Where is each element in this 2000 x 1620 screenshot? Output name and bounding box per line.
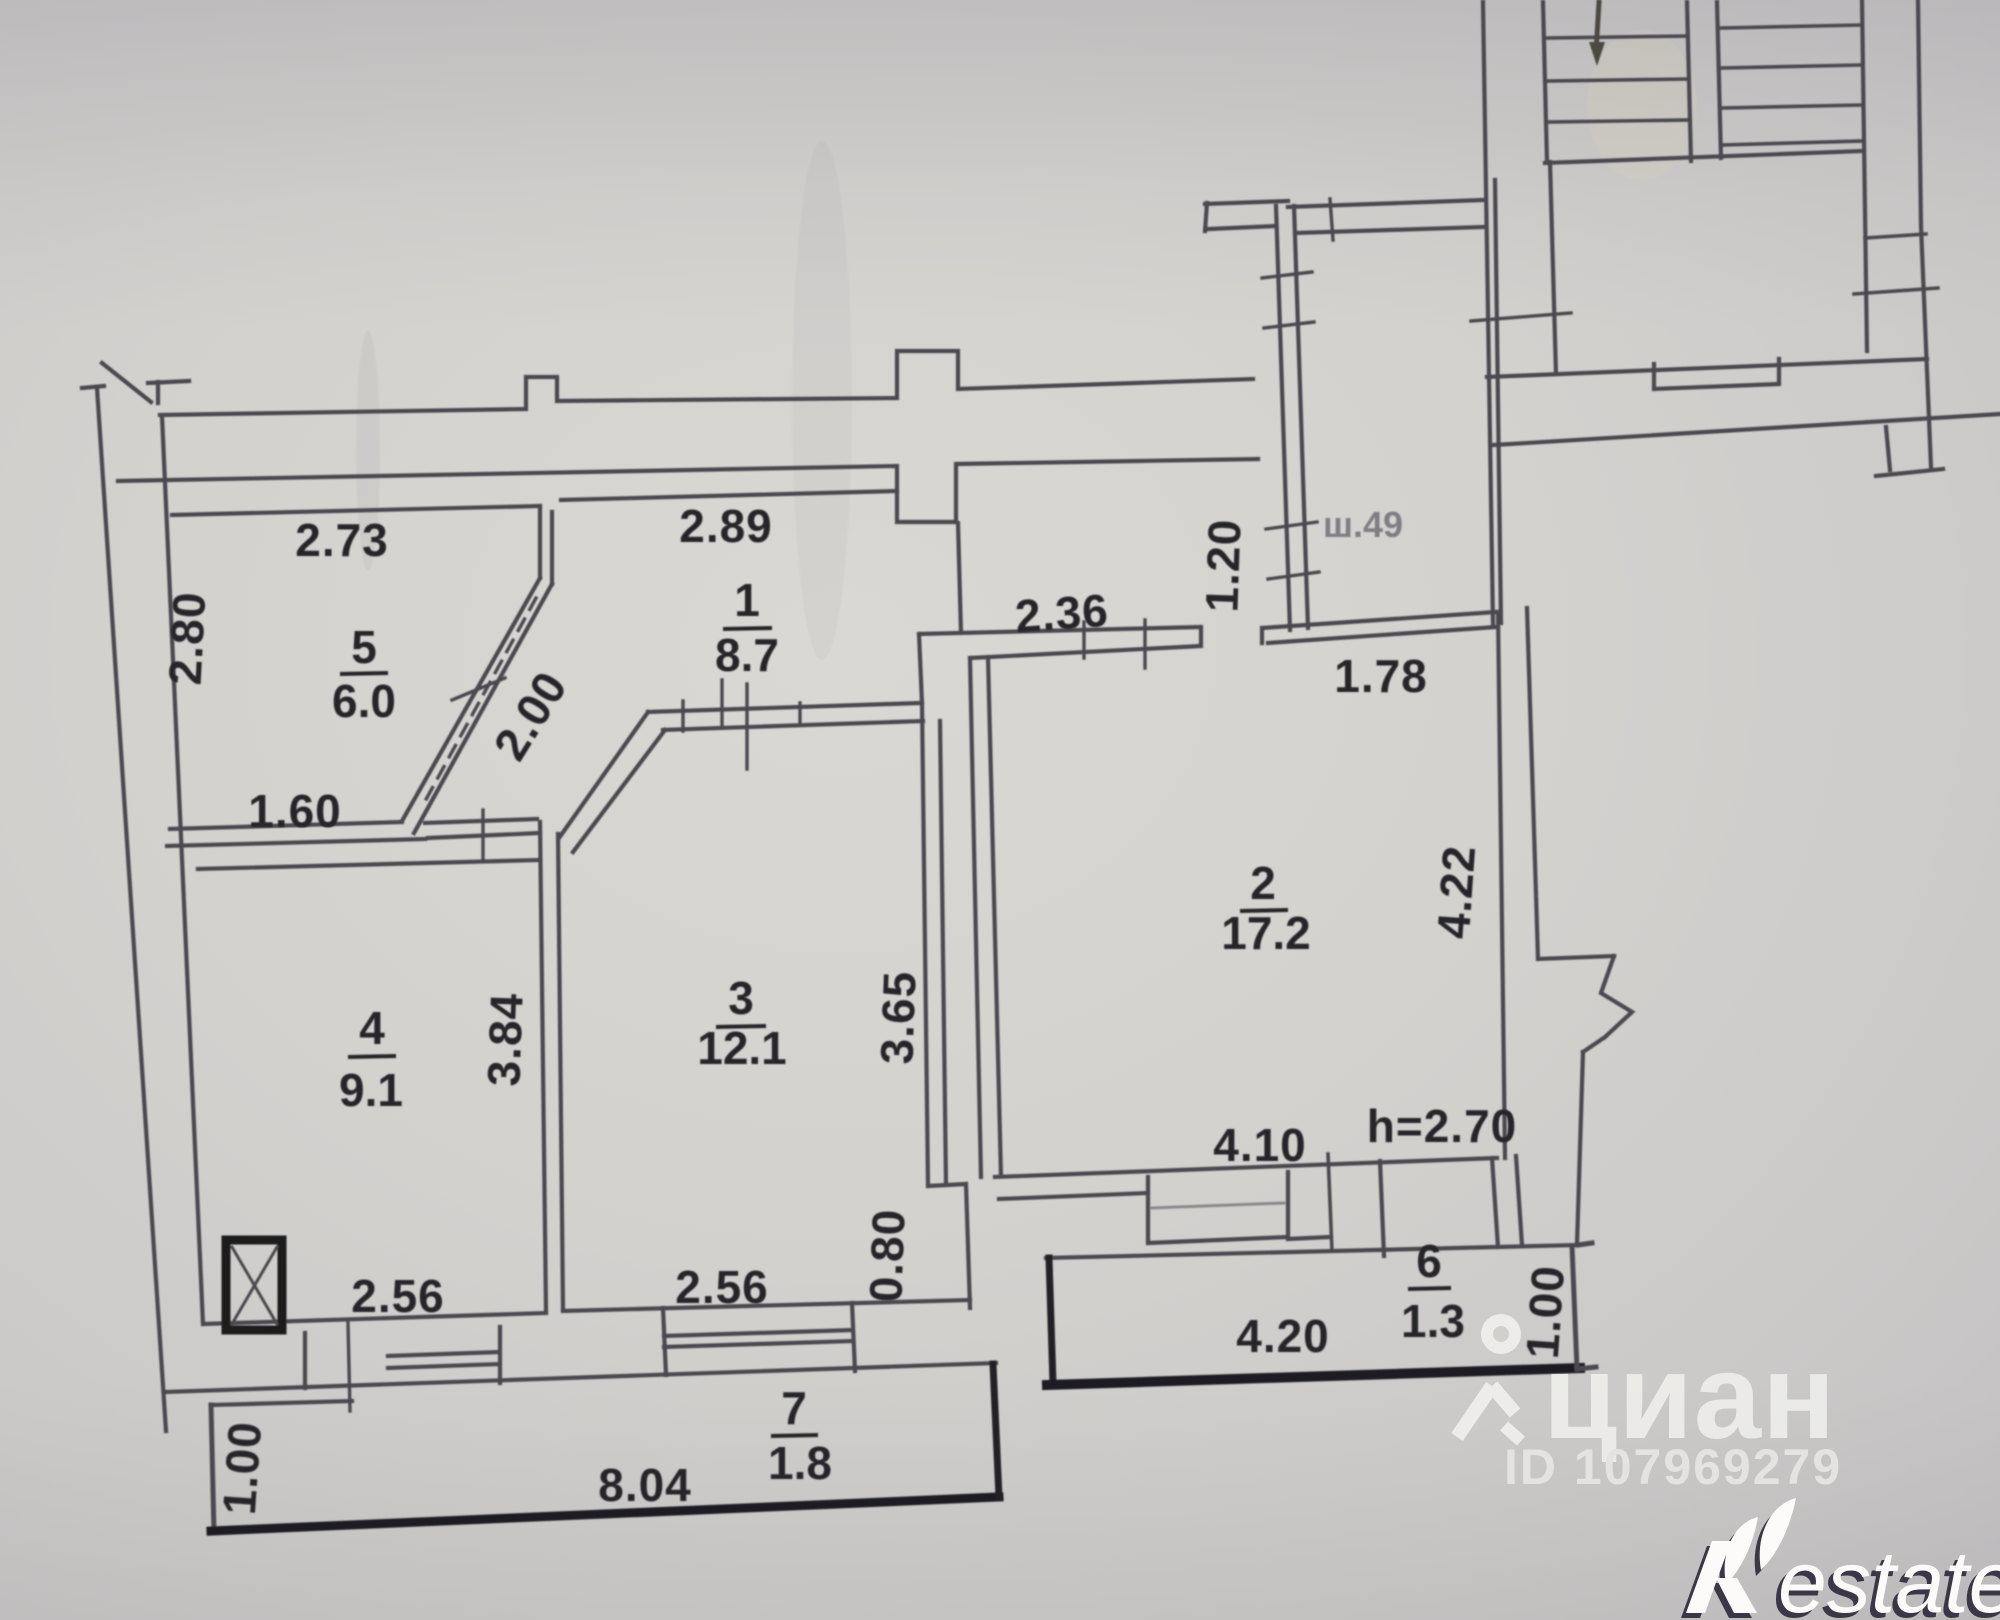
svg-text:8.04: 8.04 bbox=[598, 1459, 692, 1511]
svg-text:1.20: 1.20 bbox=[1195, 518, 1250, 613]
svg-text:3.84: 3.84 bbox=[477, 992, 532, 1087]
svg-text:4.22: 4.22 bbox=[1427, 843, 1485, 940]
svg-text:1.60: 1.60 bbox=[248, 785, 342, 837]
svg-text:2.36: 2.36 bbox=[1013, 584, 1110, 642]
svg-text:3: 3 bbox=[728, 972, 754, 1024]
svg-text:2.73: 2.73 bbox=[295, 514, 389, 566]
svg-text:4.10: 4.10 bbox=[1213, 1119, 1307, 1171]
svg-text:9.1: 9.1 bbox=[339, 1064, 403, 1116]
svg-text:2.80: 2.80 bbox=[159, 590, 216, 686]
svg-text:1.00: 1.00 bbox=[213, 1419, 271, 1516]
svg-text:1.78: 1.78 bbox=[1334, 650, 1428, 702]
svg-text:6: 6 bbox=[1416, 1235, 1442, 1287]
svg-text:h=2.70: h=2.70 bbox=[1367, 1100, 1518, 1152]
svg-text:6.0: 6.0 bbox=[332, 675, 396, 727]
svg-text:7: 7 bbox=[781, 1382, 807, 1434]
svg-text:8.7: 8.7 bbox=[715, 629, 779, 681]
svg-text:17.2: 17.2 bbox=[1221, 907, 1311, 959]
svg-text:5: 5 bbox=[351, 621, 377, 673]
svg-text:1: 1 bbox=[734, 574, 760, 626]
svg-text:ID 107969279: ID 107969279 bbox=[1504, 1439, 1842, 1495]
svg-text:0.80: 0.80 bbox=[859, 1208, 914, 1303]
svg-text:2.56: 2.56 bbox=[351, 1270, 445, 1322]
svg-text:1.3: 1.3 bbox=[1401, 1295, 1465, 1347]
svg-text:ш.49: ш.49 bbox=[1323, 504, 1403, 545]
svg-text:estate: estate bbox=[1778, 1532, 2000, 1620]
svg-text:2.56: 2.56 bbox=[675, 1261, 769, 1313]
svg-text:12.1: 12.1 bbox=[697, 1022, 787, 1074]
svg-text:4: 4 bbox=[359, 1002, 385, 1054]
svg-text:2: 2 bbox=[1250, 857, 1276, 909]
svg-text:3.65: 3.65 bbox=[870, 970, 925, 1065]
svg-text:2.89: 2.89 bbox=[679, 500, 773, 552]
svg-text:4.20: 4.20 bbox=[1236, 1310, 1330, 1362]
svg-text:1.8: 1.8 bbox=[768, 1437, 832, 1489]
